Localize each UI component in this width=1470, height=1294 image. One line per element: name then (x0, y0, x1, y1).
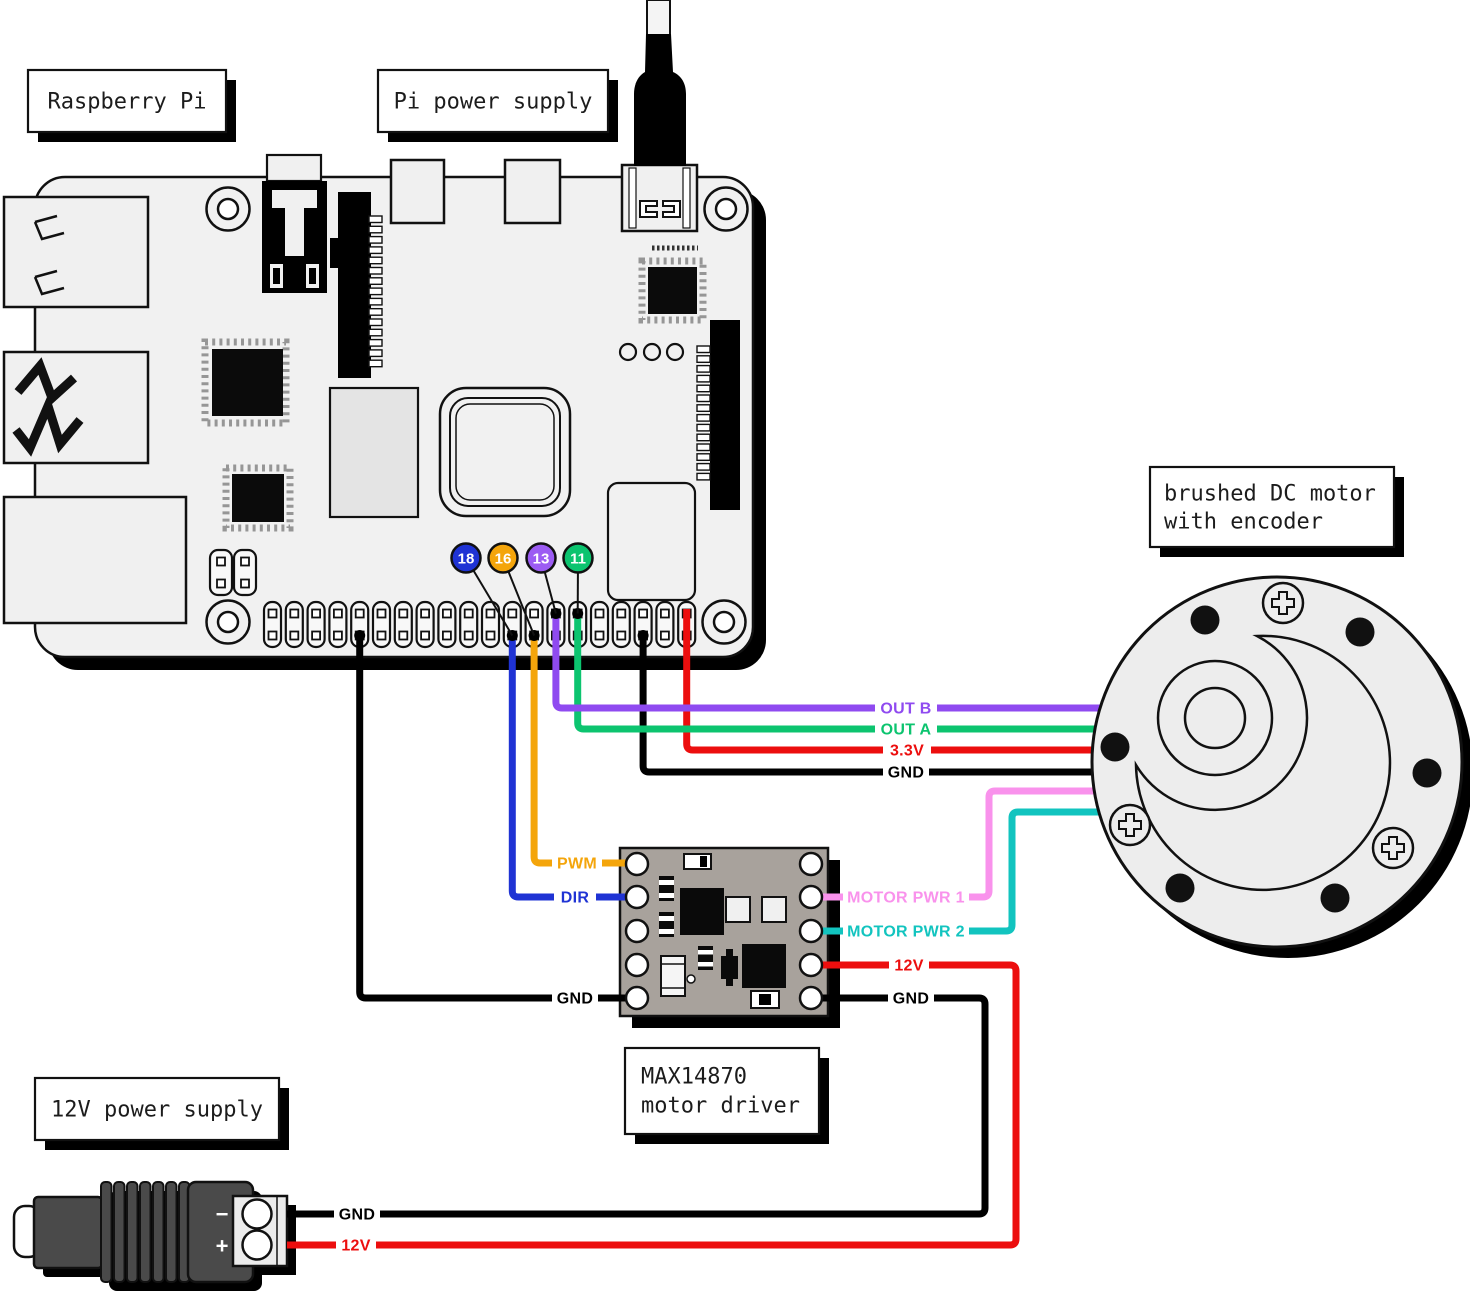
svg-text:GND: GND (888, 765, 924, 782)
test-pads (620, 344, 683, 360)
svg-text:DIR: DIR (561, 890, 590, 907)
pin-badge-16: 16 (489, 544, 518, 573)
wireless-module (608, 483, 695, 600)
gpio-pin-column (329, 602, 346, 647)
pin-badge-11-number: 11 (570, 551, 586, 568)
svg-text:GND: GND (339, 1207, 375, 1224)
pad-gnd-left (626, 987, 648, 1009)
wire-label-out-a: OUT A (875, 719, 937, 739)
wire-label-pwm: PWM (552, 853, 602, 873)
label-box-pi-power-supply: Pi power supply (378, 70, 618, 142)
power-cable (647, 0, 670, 36)
network-chip (642, 261, 703, 320)
small-chip (226, 468, 290, 528)
svg-text:12V: 12V (894, 958, 923, 975)
mounting-hole (207, 188, 250, 231)
12v-supply-label: 12V power supply (51, 1098, 263, 1123)
label-box-12v-supply: 12V power supply (35, 1078, 289, 1150)
motor-screw-icon (1110, 805, 1150, 845)
svg-text:12V: 12V (341, 1238, 370, 1255)
gpio-pin-column (656, 602, 673, 647)
pin-badge-13: 13 (527, 544, 556, 573)
terminal-block (233, 1196, 287, 1266)
usb-top-port (505, 160, 560, 223)
plug-fins (101, 1182, 190, 1282)
raspberry-pi-board (4, 155, 766, 670)
gpio-pin-column (613, 602, 630, 647)
gpio-pin-column (460, 602, 477, 647)
power-plug-body (634, 34, 686, 166)
pad-gnd-right (800, 987, 822, 1009)
mounting-hole (705, 188, 748, 231)
pad-nc-left (626, 954, 648, 976)
dc-motor (1092, 577, 1470, 958)
motor-driver-label-line2: motor driver (641, 1094, 800, 1119)
wire-gnd-logic (360, 631, 637, 998)
pin-badge-13-number: 13 (533, 551, 550, 568)
pin-badge-16-number: 16 (495, 551, 512, 568)
mounting-hole (703, 601, 746, 644)
wire-label-12v: 12V (889, 955, 929, 975)
terminal-negative-sign: − (216, 1202, 229, 1227)
wire-label-supply-12v: 12V (336, 1235, 376, 1255)
svg-text:GND: GND (557, 991, 593, 1008)
pi-power-plug (634, 0, 686, 166)
wire-label-gnd-power: GND (888, 988, 934, 1008)
wire-label-motor-pwr-2: MOTOR PWR 2 (843, 921, 969, 941)
pad-pwm (626, 853, 648, 875)
ram-chip (330, 388, 418, 517)
mounting-hole (207, 601, 250, 644)
pad-motor-2 (800, 920, 822, 942)
gpio-pin-column (417, 602, 434, 647)
svg-text:GND: GND (893, 991, 929, 1008)
soc-chip (440, 388, 570, 516)
motor-screw-icon (1263, 583, 1303, 623)
poe-header (210, 550, 256, 595)
gpio-pin-column (438, 602, 455, 647)
pad-12v (800, 954, 822, 976)
svg-text:PWM: PWM (557, 856, 597, 873)
wire-label-gnd-logic: GND (552, 988, 598, 1008)
dc-motor-label-line1: brushed DC motor (1164, 482, 1376, 507)
motor-screw-icon (1373, 828, 1413, 868)
power-supply-12v: − + (14, 1182, 296, 1291)
motor-driver-label-line1: MAX14870 (641, 1065, 747, 1090)
label-box-raspberry-pi: Raspberry Pi (28, 70, 236, 142)
wire-motor-pwr-2 (811, 812, 1101, 931)
gpio-pin-column (373, 602, 390, 647)
barrel-plug-body (34, 1197, 102, 1268)
wire-motor-pwr-1 (811, 791, 1096, 897)
terminal-positive (243, 1231, 272, 1260)
usb-top-port (391, 160, 444, 223)
label-box-motor-driver: MAX14870 motor driver (625, 1048, 829, 1144)
soc-secondary-chip (205, 342, 286, 423)
pad-nc-left (626, 920, 648, 942)
gpio-pin-column (264, 602, 281, 647)
svg-text:3.3V: 3.3V (890, 743, 924, 760)
svg-text:OUT B: OUT B (880, 701, 931, 718)
pin-badge-18: 18 (452, 544, 481, 573)
usb-dual-port (4, 352, 148, 463)
gpio-pin-column (591, 602, 608, 647)
svg-text:MOTOR PWR 2: MOTOR PWR 2 (847, 924, 965, 941)
dc-motor-label-line2: with encoder (1164, 510, 1323, 535)
pi-power-supply-label: Pi power supply (394, 90, 593, 115)
wire-label-dir: DIR (554, 887, 596, 907)
pin-badge-18-number: 18 (458, 551, 475, 568)
wire-label-out-b: OUT B (875, 698, 937, 718)
usb-port (4, 497, 186, 623)
gpio-pin-column (308, 602, 325, 647)
gpio-pin-column (395, 602, 412, 647)
raspberry-pi-label: Raspberry Pi (48, 90, 207, 115)
wire-label-motor-pwr-1: MOTOR PWR 1 (843, 887, 969, 907)
gpio-pin-column (286, 602, 303, 647)
pad-motor-1 (800, 886, 822, 908)
wire-label-gnd-encoder: GND (883, 762, 929, 782)
wire-label-supply-gnd: GND (334, 1204, 380, 1224)
wire-label-3v3: 3.3V (883, 740, 931, 760)
terminal-positive-sign: + (216, 1234, 229, 1259)
wiring-diagram: − + (0, 0, 1470, 1294)
terminal-negative (243, 1200, 272, 1229)
pad-nc-right (800, 853, 822, 875)
pad-dir (626, 886, 648, 908)
motor-body (1092, 577, 1462, 947)
pin-badge-11: 11 (564, 544, 593, 573)
svg-text:OUT A: OUT A (881, 722, 932, 739)
svg-text:MOTOR PWR 1: MOTOR PWR 1 (847, 890, 965, 907)
ethernet-port (4, 197, 148, 307)
av-jack (262, 155, 327, 293)
label-box-dc-motor: brushed DC motor with encoder (1150, 467, 1404, 557)
